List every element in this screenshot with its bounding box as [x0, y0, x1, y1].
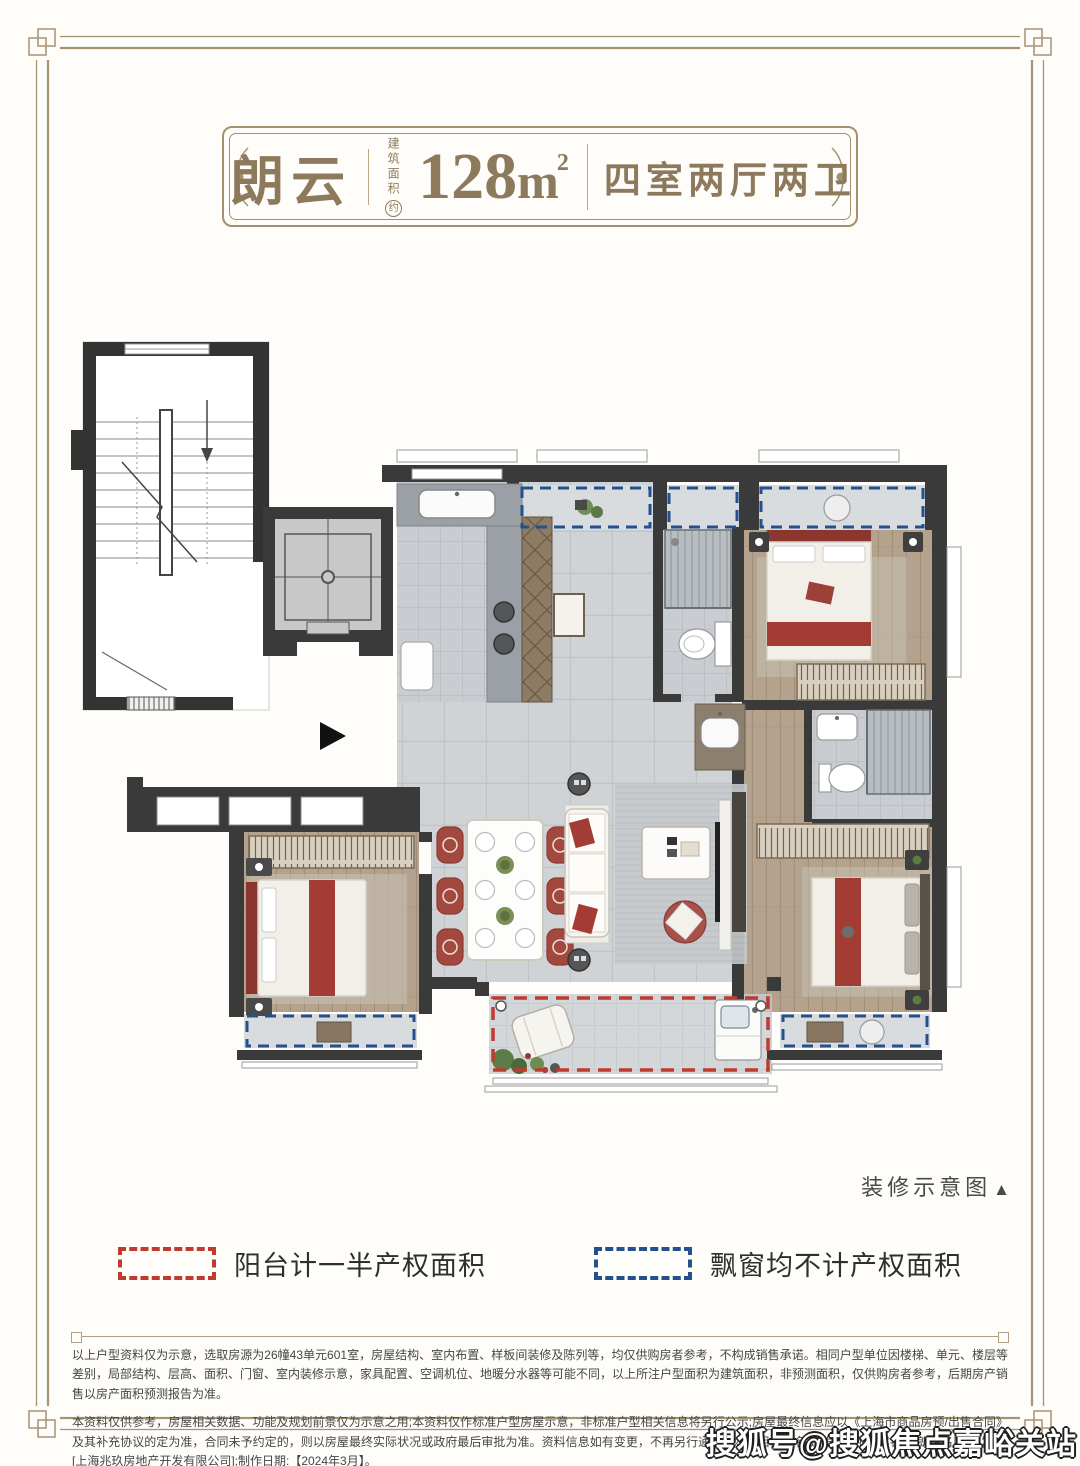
shower: [867, 710, 930, 794]
disclaimer-rule: [72, 1336, 1008, 1337]
entry-arrow: [320, 722, 346, 750]
tv-console: [719, 800, 731, 950]
poster-page: 朗云 建筑面积 约 128m2 四室两厅两卫: [0, 0, 1080, 1466]
toilet: [829, 764, 865, 792]
bed: [812, 878, 920, 986]
room-layout: 四室两厅两卫: [604, 150, 856, 204]
wardrobe: [797, 664, 925, 700]
up-triangle-icon: ▲: [993, 1180, 1010, 1199]
wardrobe: [757, 824, 929, 858]
bed-runner: [767, 622, 871, 646]
tall-cabinet: [522, 517, 552, 702]
area-value: 128m2: [418, 139, 571, 215]
tv: [715, 822, 720, 922]
disclaimer-paragraph: 以上户型资料仅为示意，选取房源为26幢43单元601室，房屋结构、室内布置、样板…: [72, 1346, 1008, 1404]
area-label: 建筑面积 约: [385, 137, 402, 217]
bed-headboard: [246, 882, 258, 994]
cooktop-burner: [494, 634, 514, 654]
wardrobe: [249, 836, 414, 868]
plaque-divider: [587, 144, 588, 210]
header-plaque: 朗云 建筑面积 约 128m2 四室两厅两卫: [222, 126, 858, 227]
baywindow-dashed-swatch: [594, 1247, 692, 1280]
bed-runner: [309, 880, 335, 996]
washer: [715, 1000, 761, 1060]
legend-item-balcony: 阳台计一半产权面积: [118, 1244, 486, 1283]
watermark: 搜狐号@搜狐焦点嘉峪关站: [706, 1419, 1077, 1463]
cooktop-burner: [494, 602, 514, 622]
unit-name: 朗云: [230, 137, 352, 216]
hall-side-table: [554, 594, 584, 636]
kitchen-stool: [401, 642, 433, 690]
decor-note: 装修示意图▲: [861, 1170, 1010, 1202]
approx-circle: 约: [385, 200, 402, 217]
legend: 阳台计一半产权面积 飘窗均不计产权面积: [0, 1244, 1080, 1283]
elevator: [263, 507, 393, 656]
sofa: [565, 805, 609, 943]
legend-item-baywindow: 飘窗均不计产权面积: [594, 1244, 962, 1283]
plaque-divider: [368, 149, 369, 205]
bed-headboard: [767, 530, 871, 542]
bed-headboard: [920, 874, 930, 990]
floor-plan: [67, 322, 1013, 1102]
tv-feature-wall: [732, 792, 746, 932]
balcony-dashed-swatch: [118, 1247, 216, 1280]
left-wing-wall: [127, 777, 420, 832]
